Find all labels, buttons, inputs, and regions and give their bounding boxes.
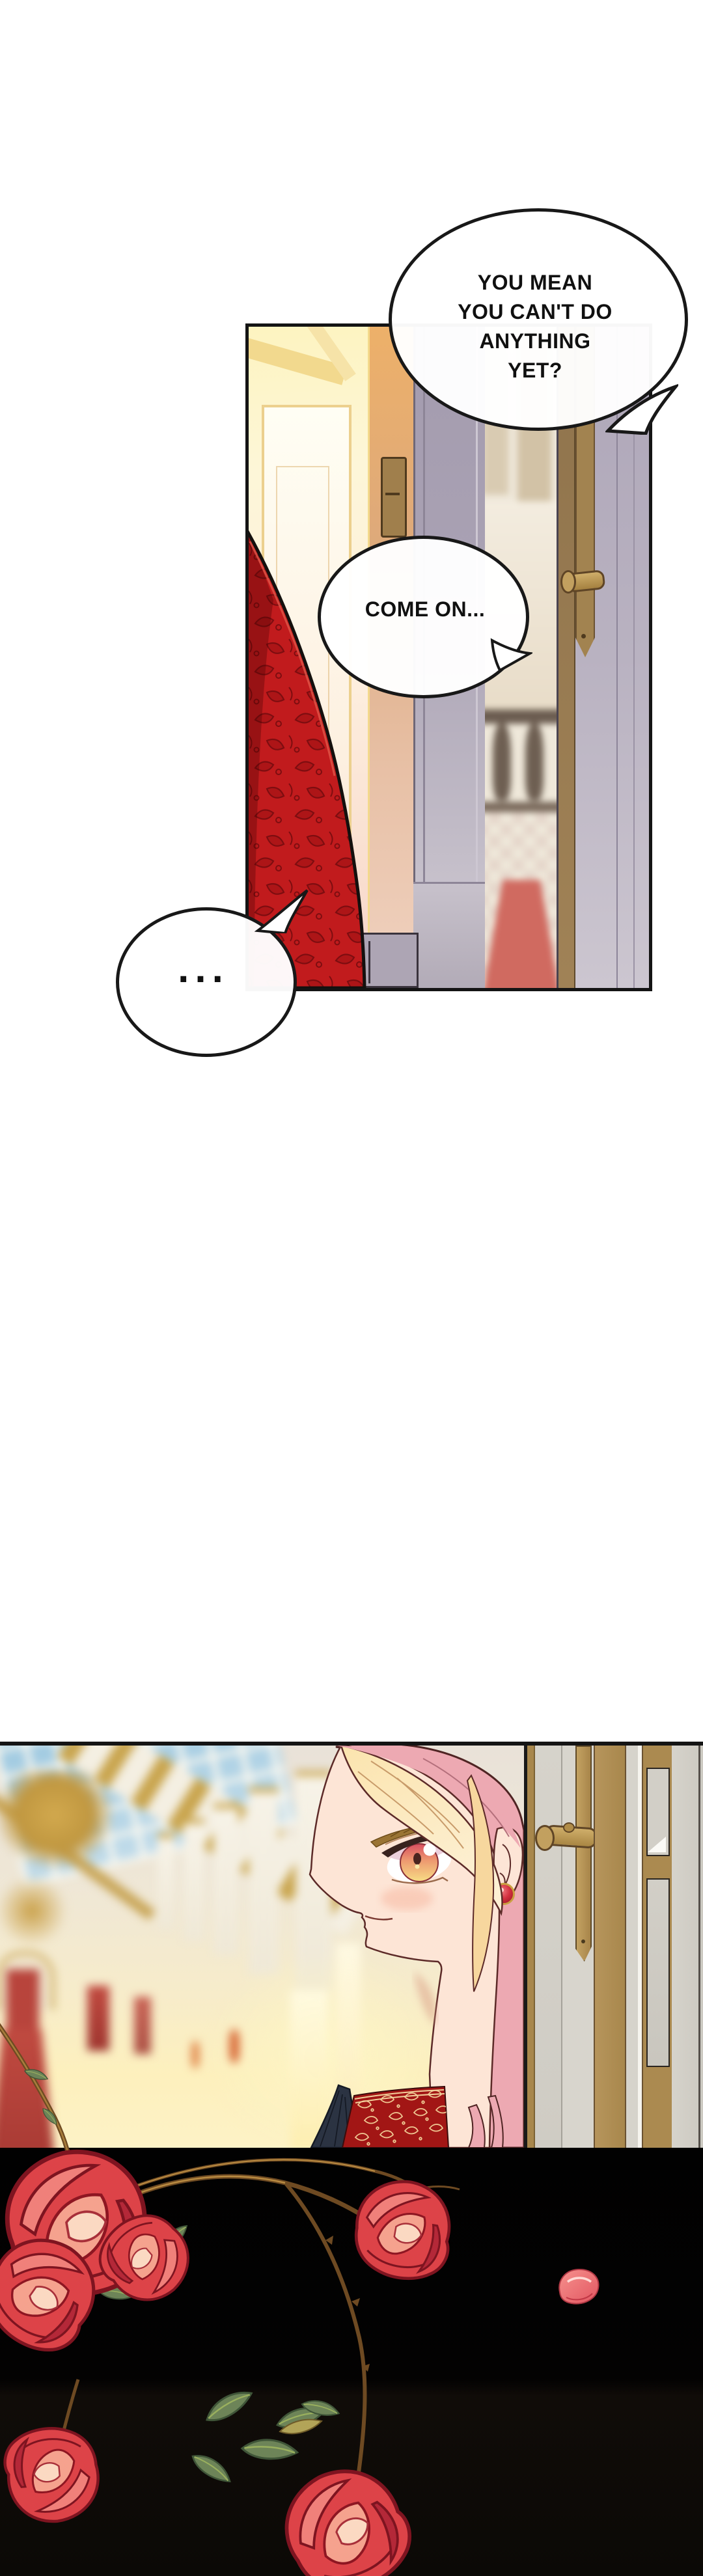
chandelier bbox=[0, 1771, 113, 1869]
door-handle-plate bbox=[575, 1746, 592, 1962]
rose-branch-artwork bbox=[0, 2015, 703, 2576]
rose-bloom-bottom bbox=[269, 2452, 424, 2576]
pilaster bbox=[214, 1803, 238, 1955]
rose-bloom-drooping bbox=[2, 2424, 102, 2525]
door-left-bottom-molding bbox=[413, 882, 489, 988]
speech-text-1: YOU MEAN YOU CAN'T DO ANYTHING YET? bbox=[395, 268, 675, 385]
door-handle-base bbox=[560, 570, 576, 594]
bubble-2-tail bbox=[489, 637, 532, 673]
door-handle-ring bbox=[563, 1822, 575, 1833]
falling-petal bbox=[559, 2269, 598, 2304]
screw-dot bbox=[581, 1939, 585, 1943]
bubble-1-tail bbox=[605, 383, 678, 435]
blurred-baluster bbox=[493, 724, 511, 801]
pilaster bbox=[158, 1833, 174, 1929]
door-recessed-panel bbox=[646, 1768, 670, 1856]
chandelier-small bbox=[0, 1875, 68, 1947]
rose-bloom-right bbox=[349, 2174, 459, 2285]
webtoon-page: YOU MEAN YOU CAN'T DO ANYTHING YET? COME… bbox=[0, 0, 703, 2576]
pilaster bbox=[184, 1818, 204, 1941]
blurred-baluster bbox=[525, 724, 544, 801]
blurred-railing-base bbox=[485, 802, 558, 812]
speech-text-3: ... bbox=[124, 912, 283, 1045]
door-hinge bbox=[381, 457, 407, 538]
blurred-railing bbox=[485, 709, 558, 724]
door-handle-base bbox=[535, 1825, 555, 1851]
screw-dot bbox=[581, 634, 586, 638]
speech-text-2: COME ON... bbox=[331, 597, 519, 622]
cheek-blush bbox=[381, 1887, 433, 1910]
